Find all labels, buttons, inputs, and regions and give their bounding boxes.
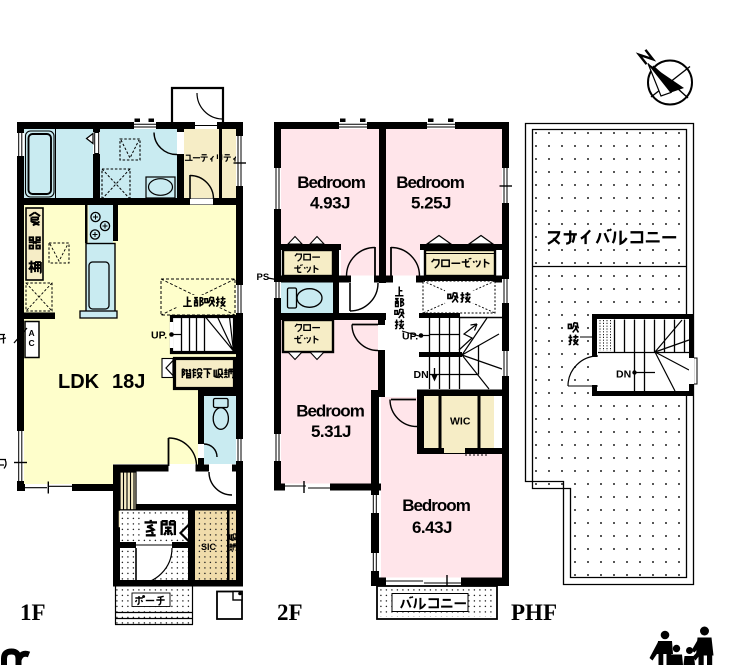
svg-text:Bedroom: Bedroom <box>396 173 465 192</box>
svg-text:4.93J: 4.93J <box>310 194 350 213</box>
svg-text:PS: PS <box>257 272 270 283</box>
svg-text:Bedroom: Bedroom <box>297 173 366 192</box>
svg-text:5.31J: 5.31J <box>311 422 351 441</box>
svg-text:Bedroom: Bedroom <box>402 496 471 515</box>
svg-text:5.25J: 5.25J <box>411 194 451 213</box>
svg-text:UP.: UP. <box>151 330 167 342</box>
svg-text:A: A <box>29 328 35 338</box>
svg-text:18J: 18J <box>112 371 145 393</box>
svg-text:DN: DN <box>414 369 429 381</box>
svg-text:LDK: LDK <box>58 371 100 393</box>
svg-text:SIC: SIC <box>201 542 217 552</box>
svg-text:PHF: PHF <box>511 600 557 625</box>
svg-text:UP.: UP. <box>402 331 418 343</box>
svg-text:DN: DN <box>616 369 631 381</box>
svg-text:Bedroom: Bedroom <box>296 402 365 421</box>
svg-text:C: C <box>29 338 35 348</box>
svg-text:6.43J: 6.43J <box>412 518 452 537</box>
svg-text:2F: 2F <box>277 600 303 625</box>
svg-text:1F: 1F <box>20 600 46 625</box>
svg-text:WIC: WIC <box>450 416 471 428</box>
